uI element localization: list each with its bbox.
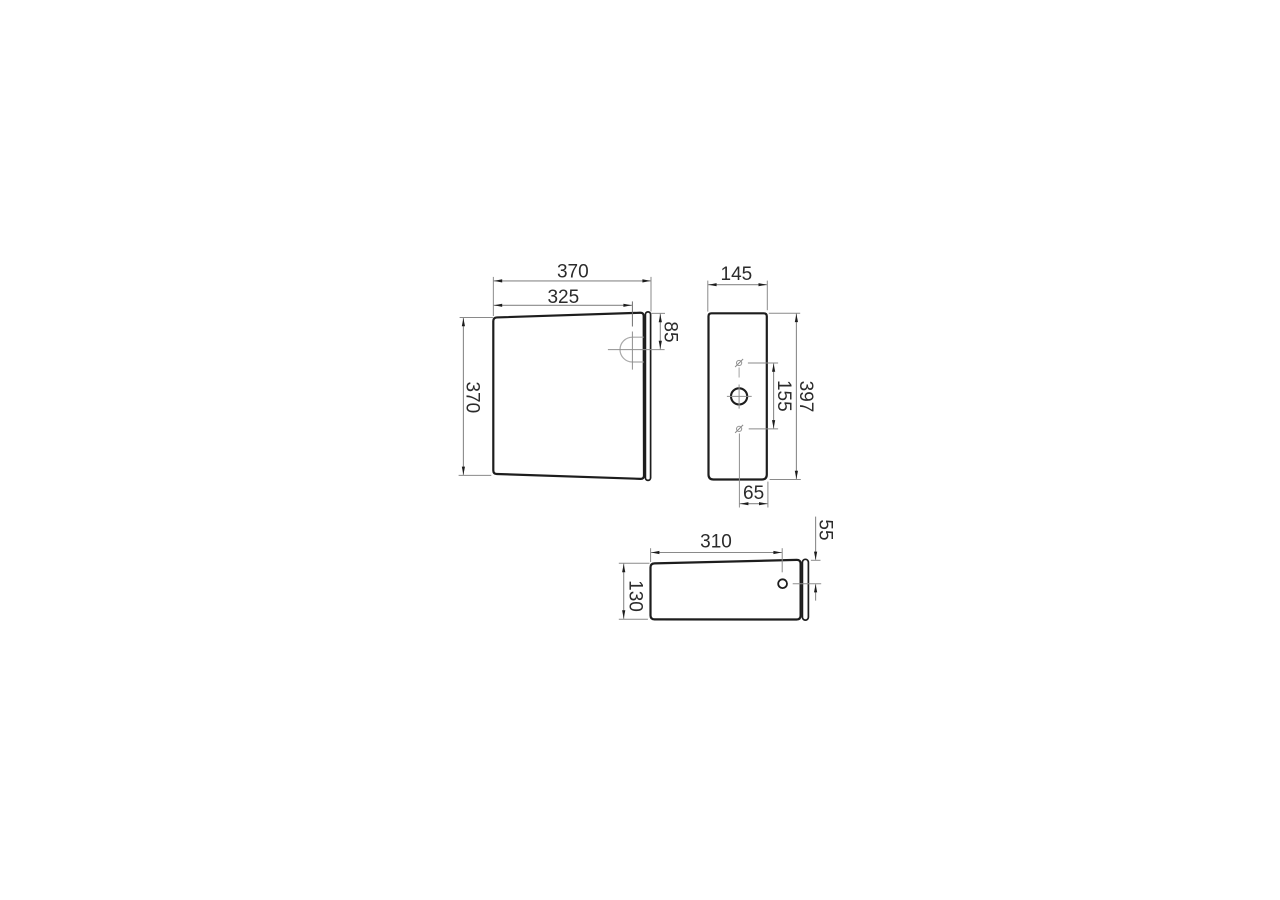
svg-text:155: 155 <box>773 380 794 412</box>
svg-text:397: 397 <box>795 381 816 413</box>
svg-text:55: 55 <box>815 519 836 540</box>
svg-text:145: 145 <box>721 264 753 285</box>
svg-text:130: 130 <box>624 580 645 612</box>
svg-text:65: 65 <box>743 483 764 504</box>
svg-text:85: 85 <box>659 321 680 342</box>
svg-text:370: 370 <box>557 262 589 283</box>
svg-text:310: 310 <box>700 531 732 552</box>
svg-text:325: 325 <box>547 287 579 308</box>
svg-text:370: 370 <box>461 381 482 413</box>
